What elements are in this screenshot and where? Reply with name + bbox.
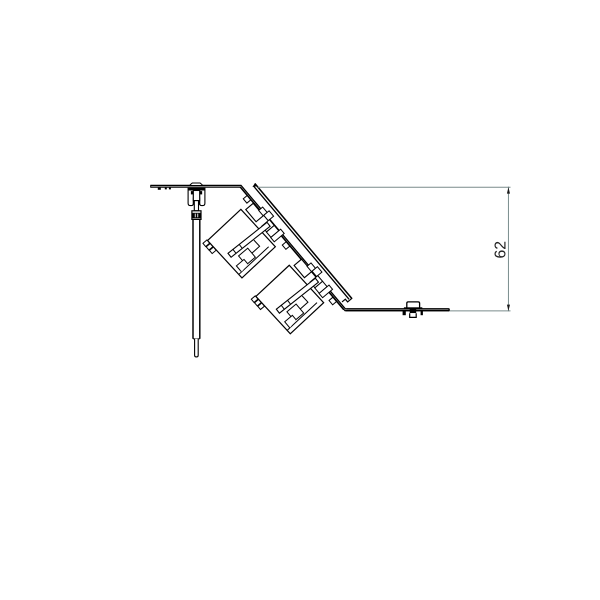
svg-text:62: 62	[493, 241, 510, 259]
